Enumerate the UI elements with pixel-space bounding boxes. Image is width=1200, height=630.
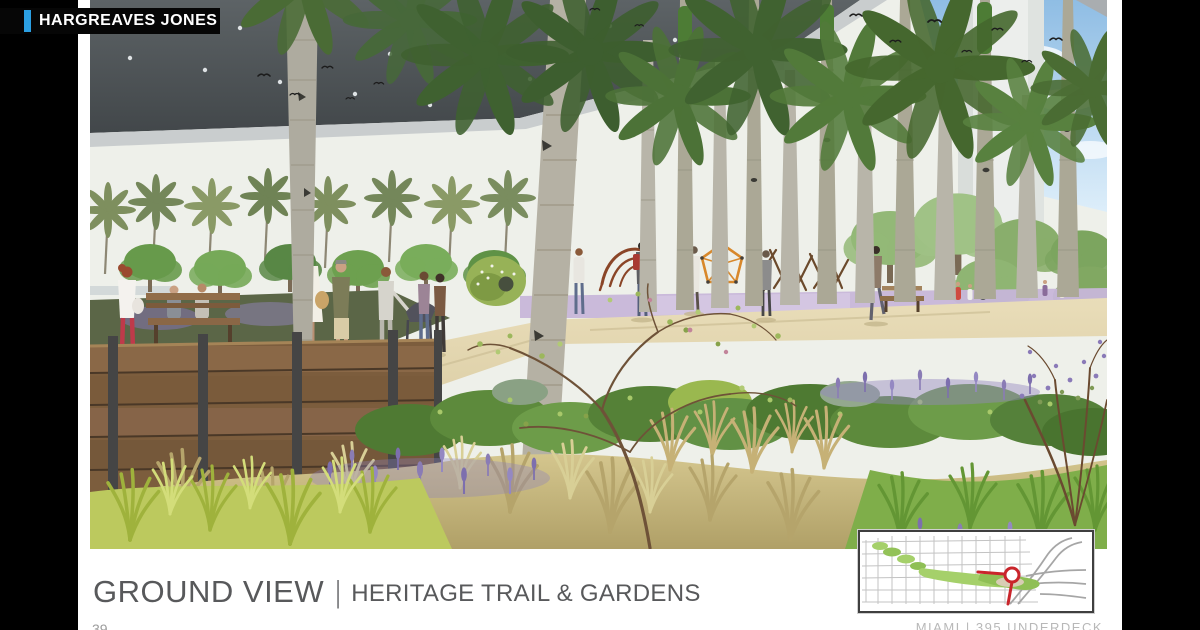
climbing-mound (466, 256, 526, 306)
caption-separator: | (336, 574, 341, 610)
map-inset (858, 530, 1094, 613)
page-subtitle: HERITAGE TRAIL & GARDENS (351, 580, 701, 608)
key-map (860, 532, 1088, 607)
presentation-slide: GROUND VIEW | HERITAGE TRAIL & GARDENS 3… (78, 0, 1122, 630)
brand-name: HARGREAVES JONES (39, 12, 217, 30)
page-title: GROUND VIEW (93, 574, 324, 610)
rendering-scene (90, 0, 1107, 549)
brand-logo: HARGREAVES JONES (0, 8, 220, 34)
caption: GROUND VIEW | HERITAGE TRAIL & GARDENS (93, 574, 701, 610)
brand-accent-bar (24, 10, 31, 32)
page-number: 39 (92, 621, 108, 630)
rendering-image (90, 0, 1107, 549)
project-label: MIAMI | 395 UNDERDECK (916, 620, 1103, 630)
